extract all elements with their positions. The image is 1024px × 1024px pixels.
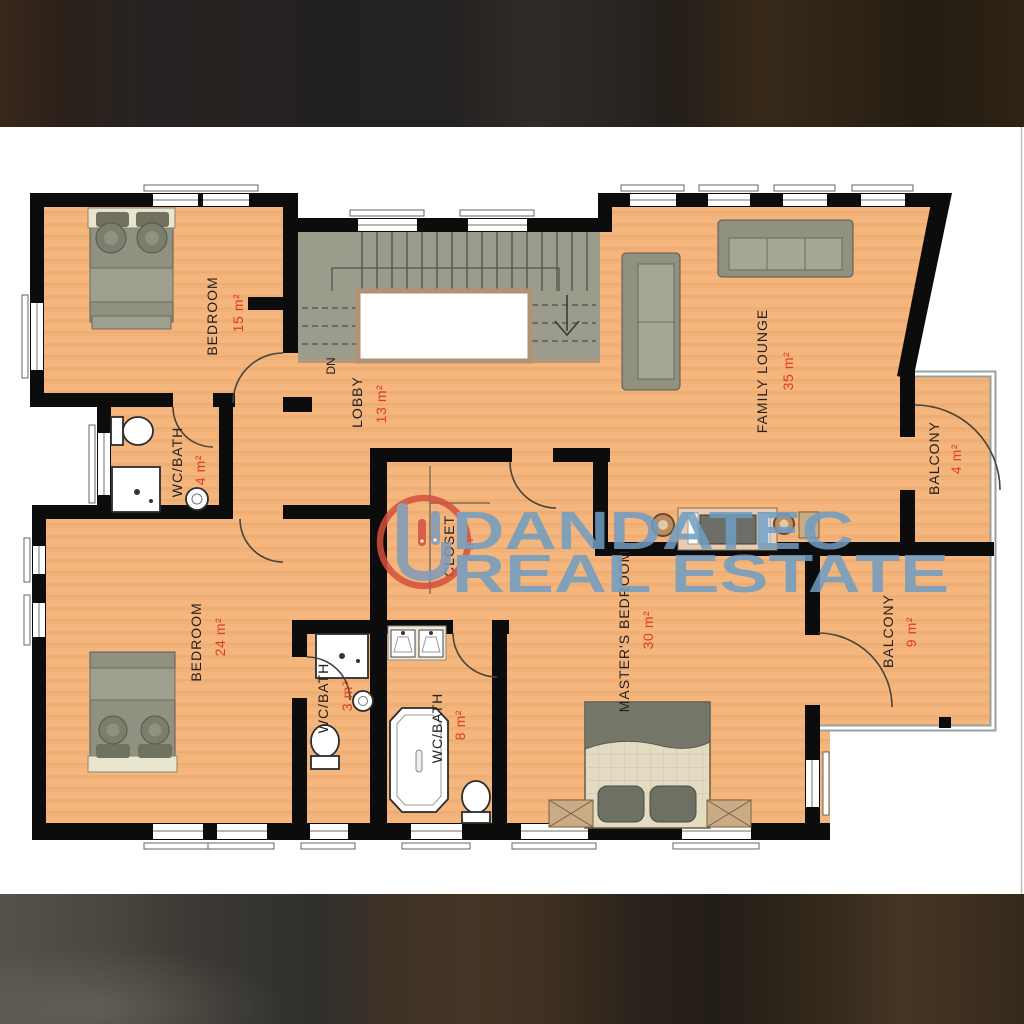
window <box>460 210 534 231</box>
window <box>774 185 835 206</box>
window <box>806 752 829 815</box>
area-label-bedroom-bottom: 24 m² <box>212 618 228 657</box>
window <box>144 824 210 849</box>
window <box>852 185 913 206</box>
window <box>89 425 110 503</box>
window <box>301 824 355 849</box>
basin <box>186 488 208 510</box>
window <box>402 824 470 849</box>
room-label-lobby: LOBBY <box>349 376 365 428</box>
area-label-balcony-upper: 4 m² <box>948 444 964 474</box>
window <box>24 595 45 645</box>
toilet <box>462 781 490 813</box>
stairwell-void <box>358 291 530 361</box>
staircase <box>298 232 600 363</box>
room-label-balcony-lower: BALCONY <box>880 594 896 668</box>
bed-double-bottom <box>88 652 177 772</box>
window <box>350 210 424 231</box>
window <box>144 185 258 206</box>
room-label-bedroom-top: BEDROOM <box>204 276 220 355</box>
nightstand-left <box>549 800 593 827</box>
nightstand-right <box>707 800 751 827</box>
window <box>24 538 45 582</box>
room-label-balcony-upper: BALCONY <box>926 421 942 495</box>
room-label-family-lounge: FAMILY LOUNGE <box>754 309 770 434</box>
room-label-wc-bath-master: WC/BATH <box>429 693 445 764</box>
area-label-lobby: 13 m² <box>373 385 389 424</box>
stairs-down-label: DN <box>324 357 338 374</box>
room-label-wc-bath-middle: WC/BATH <box>315 663 331 734</box>
toilet <box>111 417 123 445</box>
window <box>512 824 596 849</box>
bed-master <box>585 702 710 828</box>
window <box>699 185 758 206</box>
window <box>621 185 684 206</box>
screenshot-root: BEDROOM 15 m² WC/BATH 4 m² LOBBY 13 m² D… <box>0 0 1024 1024</box>
window <box>22 295 43 378</box>
basin <box>353 691 373 711</box>
area-label-family-lounge: 35 m² <box>780 352 796 391</box>
area-label-wc-bath-top: 4 m² <box>192 455 208 485</box>
area-label-bedroom-top: 15 m² <box>230 294 246 333</box>
bed-double-top <box>88 208 175 329</box>
area-label-wc-bath-middle: 3 m² <box>339 681 355 711</box>
floor-plan: BEDROOM 15 m² WC/BATH 4 m² LOBBY 13 m² D… <box>0 0 1024 1024</box>
sofa-lounge-top <box>718 220 853 277</box>
brand-tagline: REAL ESTATE <box>452 544 949 604</box>
window <box>208 824 274 849</box>
area-label-wc-bath-master: 8 m² <box>452 710 468 740</box>
area-label-master-bedroom: 30 m² <box>640 611 656 650</box>
sofa-lounge-left <box>622 253 680 390</box>
room-label-wc-bath-top: WC/BATH <box>169 427 185 498</box>
room-label-bedroom-bottom: BEDROOM <box>188 602 204 681</box>
area-label-balcony-lower: 9 m² <box>903 617 919 647</box>
